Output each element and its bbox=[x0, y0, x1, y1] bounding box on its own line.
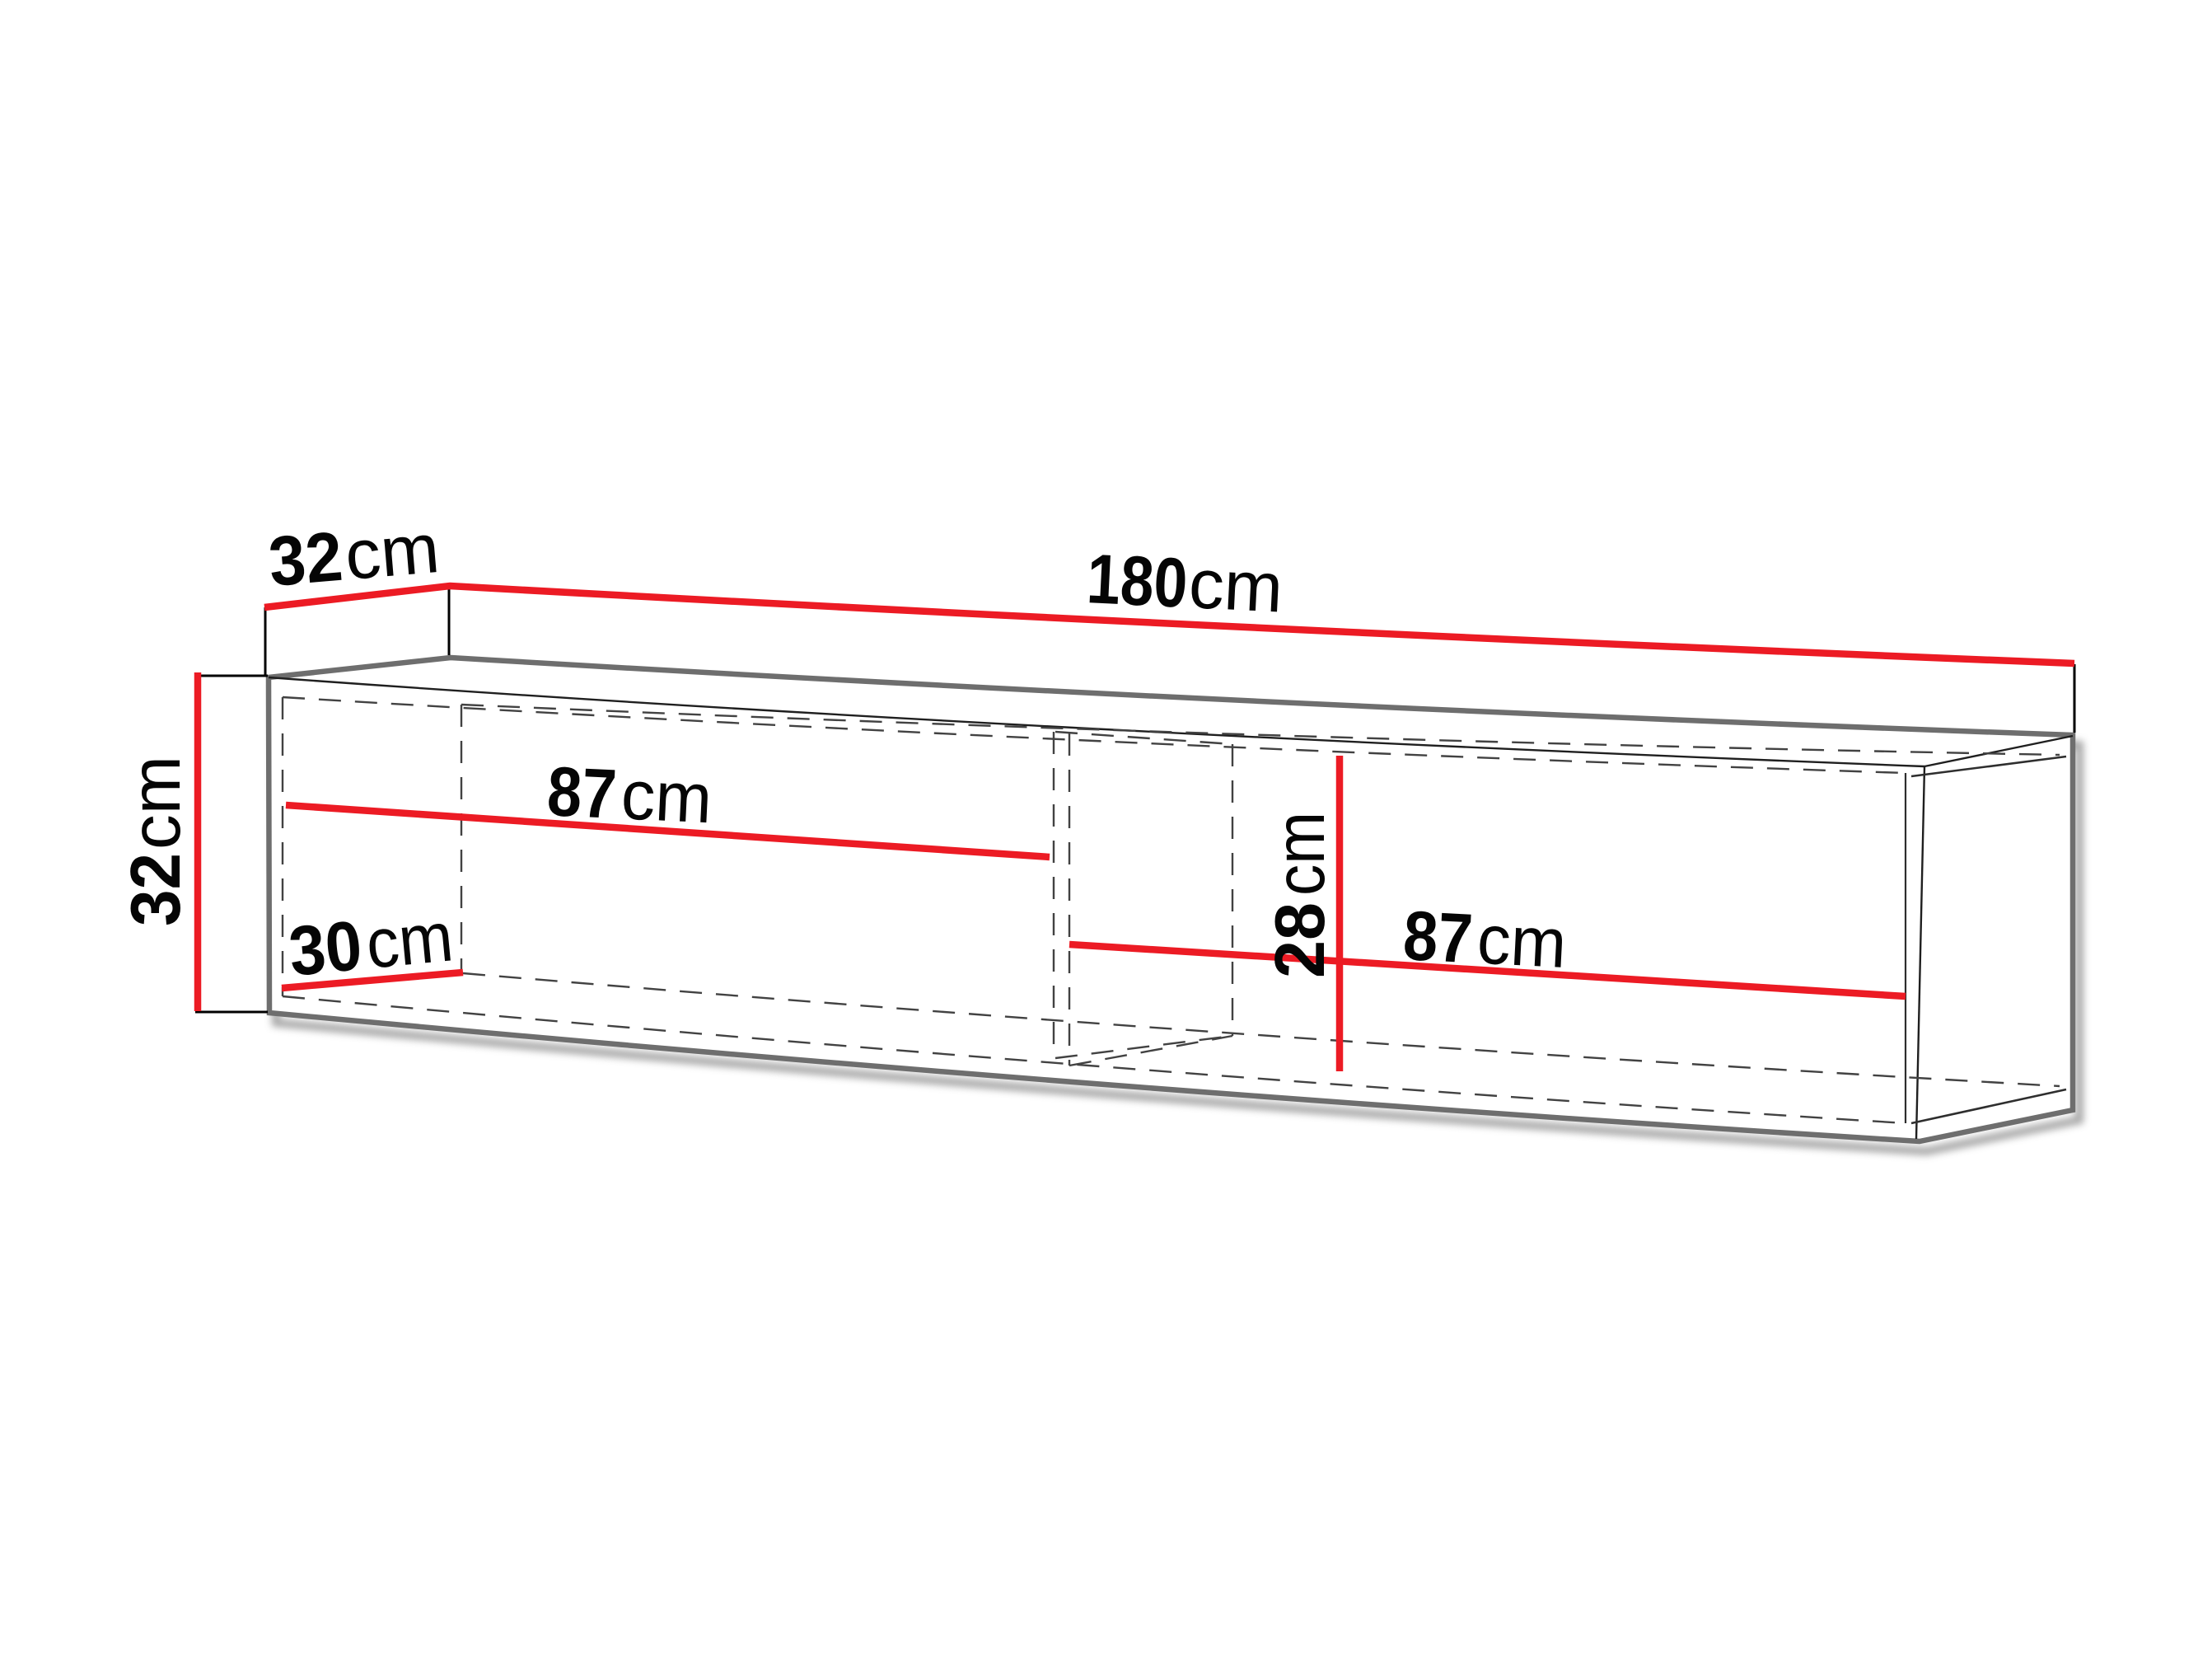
svg-text:28cm: 28cm bbox=[1261, 812, 1340, 978]
svg-text:32cm: 32cm bbox=[117, 756, 195, 926]
svg-text:87cm: 87cm bbox=[1401, 897, 1569, 983]
svg-text:32cm: 32cm bbox=[266, 509, 442, 602]
svg-text:180cm: 180cm bbox=[1085, 540, 1284, 628]
svg-text:87cm: 87cm bbox=[545, 752, 713, 838]
svg-text:30cm: 30cm bbox=[286, 897, 456, 991]
